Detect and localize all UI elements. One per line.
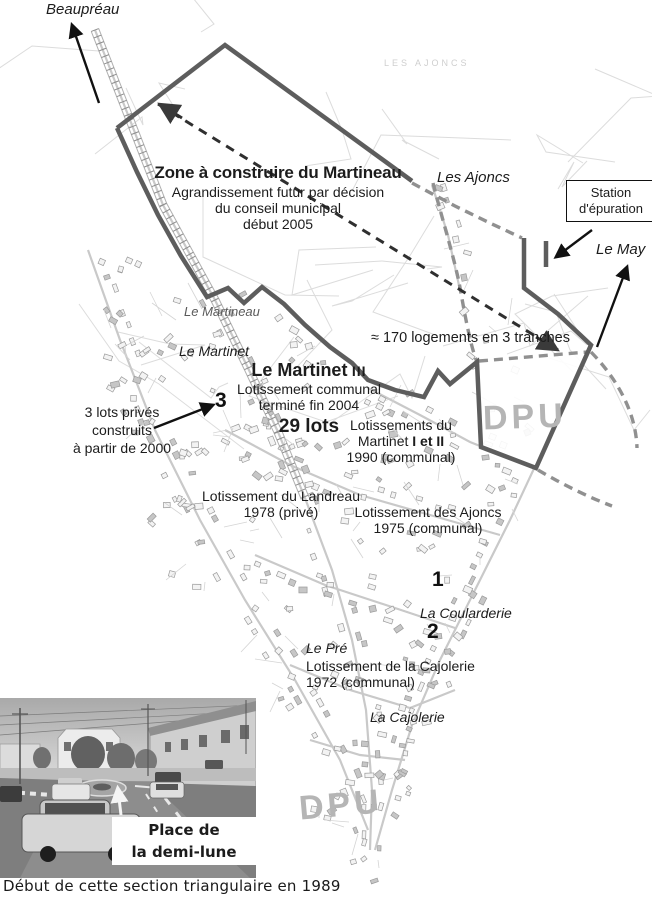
map-page: Beaupréau LES AJONCS Zone à construire d… xyxy=(0,0,652,913)
place-la-cajolerie: La Cajolerie xyxy=(370,710,445,726)
marker-1: 1 xyxy=(432,568,444,592)
cajolerie-lot-line1: Lotissement de la Cajolerie xyxy=(306,658,475,674)
martinet3-roman: III xyxy=(352,363,367,379)
marker-3: 3 xyxy=(215,389,227,413)
cadastre-bg-label: LES AJONCS xyxy=(384,58,470,68)
ajoncs-lot-line1: Lotissement des Ajoncs xyxy=(354,504,501,520)
place-le-pre: Le Pré xyxy=(306,641,347,657)
place-le-martineau: Le Martineau xyxy=(184,305,260,320)
zone-subtitle-1: Agrandissement futur par décision xyxy=(154,184,401,200)
zone-subtitle-2: du conseil municipal xyxy=(154,200,401,216)
beaupreau-arrow xyxy=(72,25,99,103)
ajoncs-lot-block: Lotissement des Ajoncs 1975 (communal) xyxy=(354,504,501,536)
station-epuration-box: Station d'épuration xyxy=(566,180,652,222)
lots-prives-block: 3 lots privés construits à partir de 200… xyxy=(73,403,171,457)
cajolerie-lot-block: Lotissement de la Cajolerie 1972 (commun… xyxy=(306,658,475,690)
zone-title: Zone à construire du Martineau xyxy=(154,163,401,182)
historic-photo: Place de la demi-lune xyxy=(0,698,256,878)
martinet3-title: Le Martinet xyxy=(251,360,347,380)
le-may-arrow xyxy=(597,267,627,347)
station-line1: Station xyxy=(569,185,652,201)
martinet12-line1: Lotissements du xyxy=(347,417,456,433)
marker-2: 2 xyxy=(427,620,439,644)
place-le-may: Le May xyxy=(596,242,645,259)
martinet12-line2: Martinet I et II xyxy=(347,433,456,449)
zone-subtitle-3: début 2005 xyxy=(154,216,401,232)
martinet12-line2-bold: I et II xyxy=(412,433,444,449)
dpu-label-top: DPU xyxy=(482,397,567,439)
place-beaupreau: Beaupréau xyxy=(46,2,119,19)
tranches-annotation: ≈ 170 logements en 3 tranches xyxy=(371,330,570,346)
zone-a-construire-block: Zone à construire du Martineau Agrandiss… xyxy=(154,163,401,232)
dpu-label-bottom: DPU xyxy=(297,782,384,828)
photo-horizon xyxy=(0,768,256,781)
photo-island-center xyxy=(93,784,111,791)
demi-lune-line1: Place de xyxy=(112,819,256,841)
photo-caption: Début de cette section triangulaire en 1… xyxy=(3,877,341,895)
place-les-ajoncs: Les Ajoncs xyxy=(437,170,510,187)
landreau-line2: 1978 (privé) xyxy=(202,504,360,520)
landreau-block: Lotissement du Landreau 1978 (privé) xyxy=(202,488,360,520)
lots-prives-line2: construits xyxy=(73,421,171,439)
place-demi-lune-label: Place de la demi-lune xyxy=(112,817,256,865)
station-arrow xyxy=(556,230,592,257)
ajoncs-lot-line2: 1975 (communal) xyxy=(354,520,501,536)
martinet3-line2: terminé fin 2004 xyxy=(237,397,381,413)
lots-prives-line1: 3 lots privés xyxy=(73,403,171,421)
station-line2: d'épuration xyxy=(569,201,652,217)
martinet12-block: Lotissements du Martinet I et II 1990 (c… xyxy=(347,417,456,465)
demi-lune-line2: la demi-lune xyxy=(112,841,256,863)
cajolerie-lot-line2: 1972 (communal) xyxy=(306,674,475,690)
landreau-line1: Lotissement du Landreau xyxy=(202,488,360,504)
martinet12-line2-pre: Martinet xyxy=(358,433,412,449)
lots-prives-line3: à partir de 2000 xyxy=(73,439,171,457)
place-le-martinet: Le Martinet xyxy=(179,344,249,360)
martinet12-line3: 1990 (communal) xyxy=(347,449,456,465)
martinet3-line1: Lotissement communal xyxy=(237,381,381,397)
